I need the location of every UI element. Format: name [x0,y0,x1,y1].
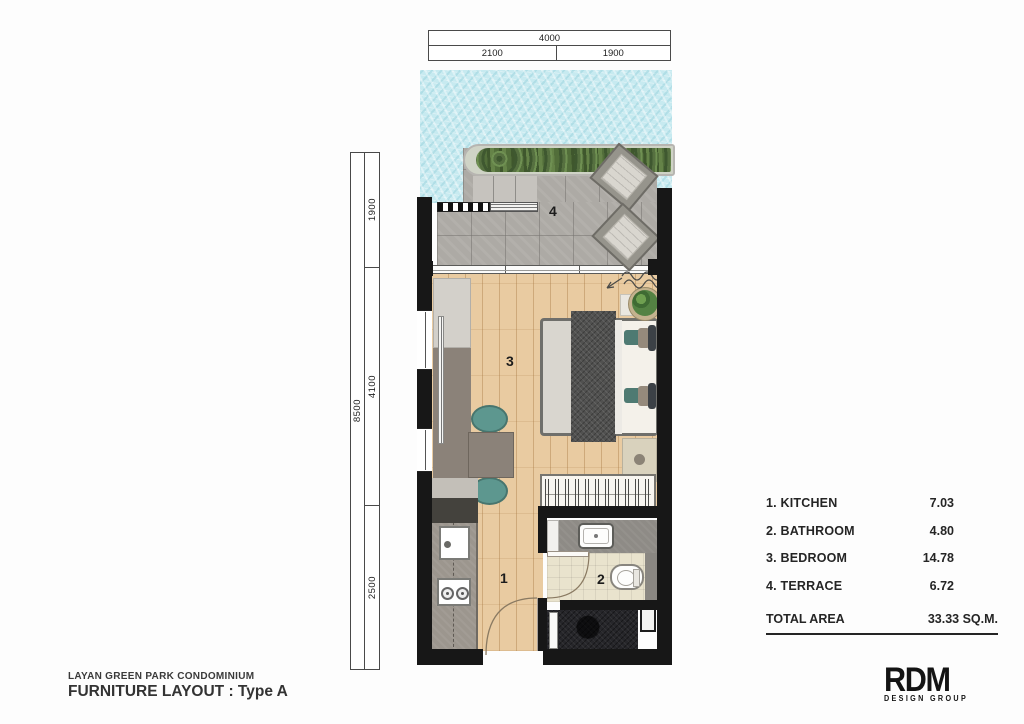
wall-right [657,188,672,651]
window-left-2 [417,428,432,472]
legend-total-row: TOTAL AREA 33.33 SQ.M. [766,612,998,635]
legend-room-name: 3. BEDROOM [766,551,908,565]
wall-left [417,368,432,428]
legend-room-area: 7.03 [908,496,954,510]
room-label-terrace: 4 [549,203,557,219]
left-dimension-bar: 8500 1900 4100 2500 [350,152,380,670]
curtain-arrow-icon [607,278,622,288]
room-label-bedroom: 3 [506,353,514,369]
bathroom-door-arc [547,553,589,598]
entry-door-arc [486,598,537,655]
top-dimension-bar: 4000 2100 1900 [428,30,671,61]
area-legend: 1. KITCHEN 7.03 2. BATHROOM 4.80 3. BEDR… [766,496,998,635]
wall-slidingdoor-stub-left [417,261,433,276]
annotation-overlay [410,60,680,680]
wall-slidingdoor-stub-right [648,259,672,275]
logo-text: RDM [884,664,968,696]
legend-room-area: 4.80 [908,524,954,538]
legend-room-name: 2. BATHROOM [766,524,908,538]
window-glass-line [425,312,426,368]
wall-shower-left [538,598,547,651]
dim-left-segment-1: 1900 [367,198,378,221]
layout-title: FURNITURE LAYOUT : Type A [68,683,288,701]
dim-top-segment-1: 2100 [429,46,557,60]
dim-top-segment-2: 1900 [557,46,670,60]
legend-room-name: 4. TERRACE [766,579,908,593]
project-name: LAYAN GREEN PARK CONDOMINIUM [68,671,288,682]
wall-bottom-left [417,649,483,665]
legend-room-name: 1. KITCHEN [766,496,908,510]
window-left-1 [417,310,432,370]
legend-row: 4. TERRACE 6.72 [766,579,998,593]
legend-row: 2. BATHROOM 4.80 [766,524,998,538]
room-label-bathroom: 2 [597,571,605,587]
logo-subtitle: DESIGN GROUP [884,694,968,703]
dim-left-segment-3: 2500 [367,576,378,599]
floor-plan-page: 4000 2100 1900 8500 1900 4100 2500 [0,0,1024,724]
wall-left [417,470,432,651]
legend-room-area: 14.78 [908,551,954,565]
window-glass-line [425,430,426,470]
dim-left-total: 8500 [352,399,363,422]
dim-left-segment-2: 4100 [367,375,378,398]
total-area-label: TOTAL AREA [766,612,845,626]
wall-bathroom-shower-divider [560,600,672,610]
wall-left-terrace [417,197,432,258]
legend-row: 3. BEDROOM 14.78 [766,551,998,565]
wall-bathroom-left [538,506,547,553]
total-area-value: 33.33 SQ.M. [845,612,998,626]
room-label-kitchen: 1 [500,570,508,586]
title-block: LAYAN GREEN PARK CONDOMINIUM FURNITURE L… [68,671,288,701]
dim-top-total: 4000 [429,31,670,45]
wall-bathroom-top [538,506,672,518]
legend-row: 1. KITCHEN 7.03 [766,496,998,510]
legend-room-area: 6.72 [908,579,954,593]
rdm-logo: RDM DESIGN GROUP [884,664,968,703]
wall-bottom-right [543,649,672,665]
